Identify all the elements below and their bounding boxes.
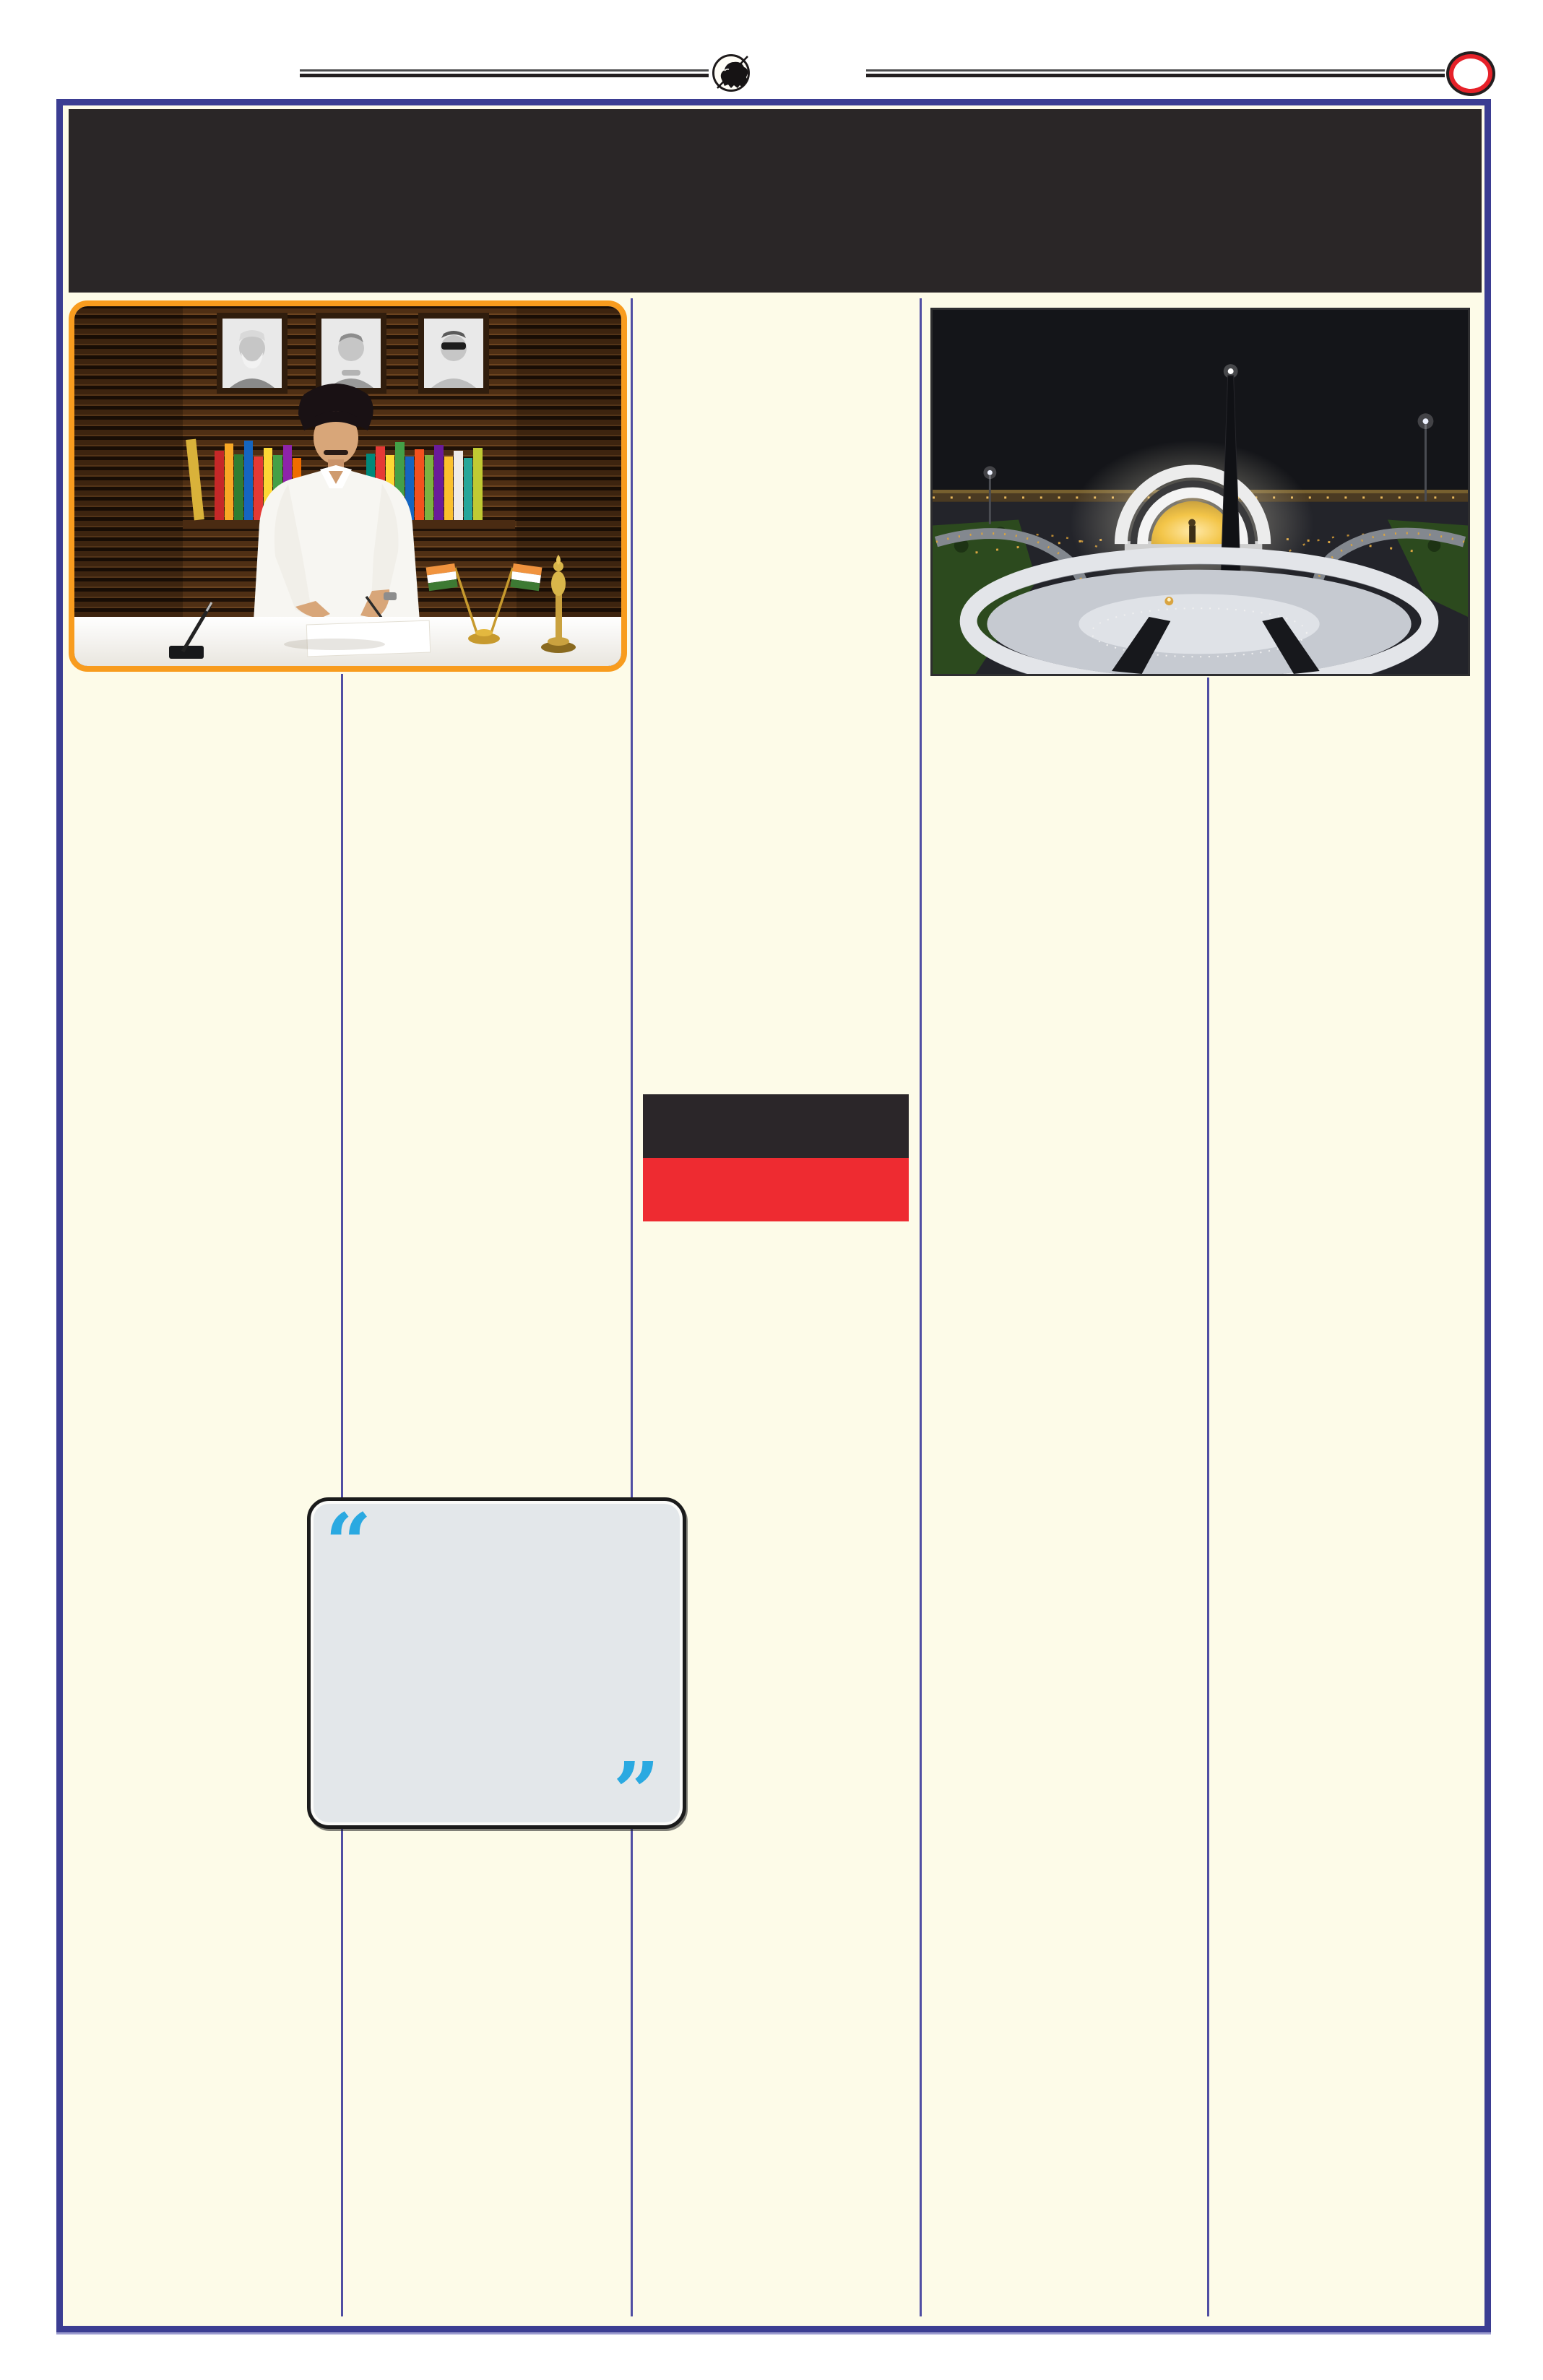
open-quote-icon: “ (325, 1508, 371, 1581)
cm-office-photo (69, 300, 627, 672)
red-oval-badge-icon (1449, 54, 1492, 93)
column-divider-3 (920, 298, 922, 2316)
masthead-rule-left (300, 69, 709, 77)
memorial-night-photo (930, 308, 1470, 676)
bull-glyph (710, 49, 752, 94)
pull-quote-box: “ ” (307, 1497, 686, 1829)
newspaper-page-canvas: “ ” (0, 0, 1543, 2380)
bull-emblem-icon (712, 54, 750, 92)
column-divider-1 (341, 674, 343, 2316)
masthead-band (69, 109, 1482, 293)
column-divider-2 (631, 298, 633, 2316)
memorial-night-photo-art (933, 310, 1468, 674)
cm-office-photo-art (74, 306, 621, 666)
column-divider-4 (1207, 678, 1209, 2316)
masthead-rule-right (866, 69, 1445, 77)
party-flag (643, 1094, 909, 1221)
flag-black-stripe (643, 1094, 909, 1158)
close-quote-icon: ” (613, 1757, 660, 1830)
flag-red-stripe (643, 1158, 909, 1221)
page-frame: “ ” (56, 99, 1491, 2332)
